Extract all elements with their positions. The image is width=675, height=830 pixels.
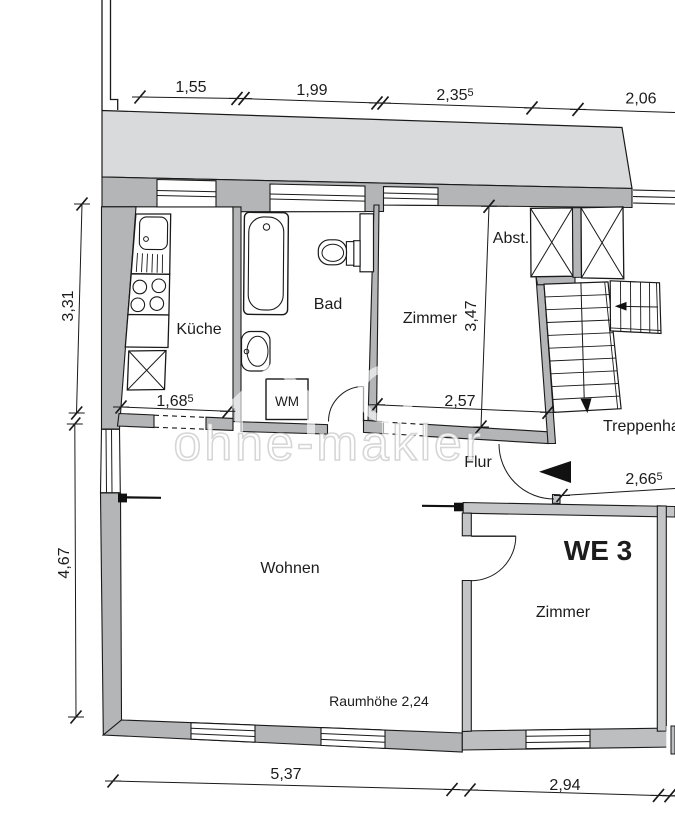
svg-text:Zimmer: Zimmer bbox=[403, 310, 458, 327]
svg-text:1,55: 1,55 bbox=[175, 79, 206, 96]
svg-text:4,67: 4,67 bbox=[56, 547, 73, 578]
svg-text:Treppenhaus: Treppenhaus bbox=[603, 418, 675, 435]
svg-text:Wohnen: Wohnen bbox=[260, 560, 319, 577]
svg-text:2,94: 2,94 bbox=[549, 777, 580, 794]
svg-text:3,47: 3,47 bbox=[463, 300, 480, 331]
svg-text:Küche: Küche bbox=[176, 321, 221, 338]
svg-text:WM: WM bbox=[275, 394, 299, 409]
svg-text:2,06: 2,06 bbox=[625, 91, 656, 108]
svg-text:1,99: 1,99 bbox=[296, 82, 327, 99]
svg-text:2,57: 2,57 bbox=[444, 393, 475, 410]
svg-text:ohne-makler: ohne-makler bbox=[174, 415, 485, 471]
svg-text:3,31: 3,31 bbox=[60, 290, 77, 321]
svg-text:5,37: 5,37 bbox=[270, 766, 301, 783]
svg-text:Raumhöhe 2,24: Raumhöhe 2,24 bbox=[329, 693, 429, 709]
svg-text:Abst.: Abst. bbox=[493, 230, 529, 247]
svg-text:Zimmer: Zimmer bbox=[536, 604, 591, 621]
svg-text:WE 3: WE 3 bbox=[564, 535, 632, 566]
svg-text:Bad: Bad bbox=[314, 296, 342, 313]
